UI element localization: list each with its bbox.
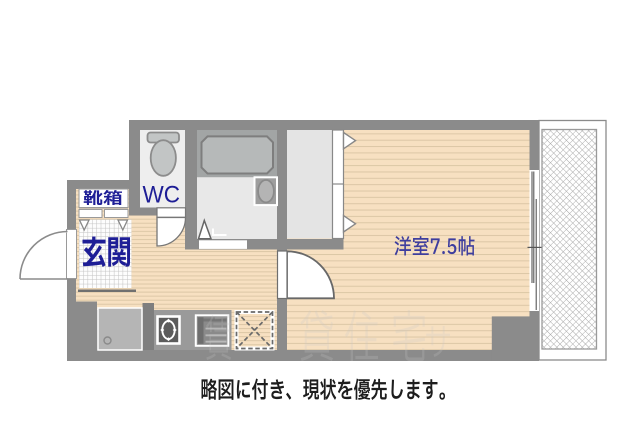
svg-text:WC: WC bbox=[143, 182, 181, 209]
